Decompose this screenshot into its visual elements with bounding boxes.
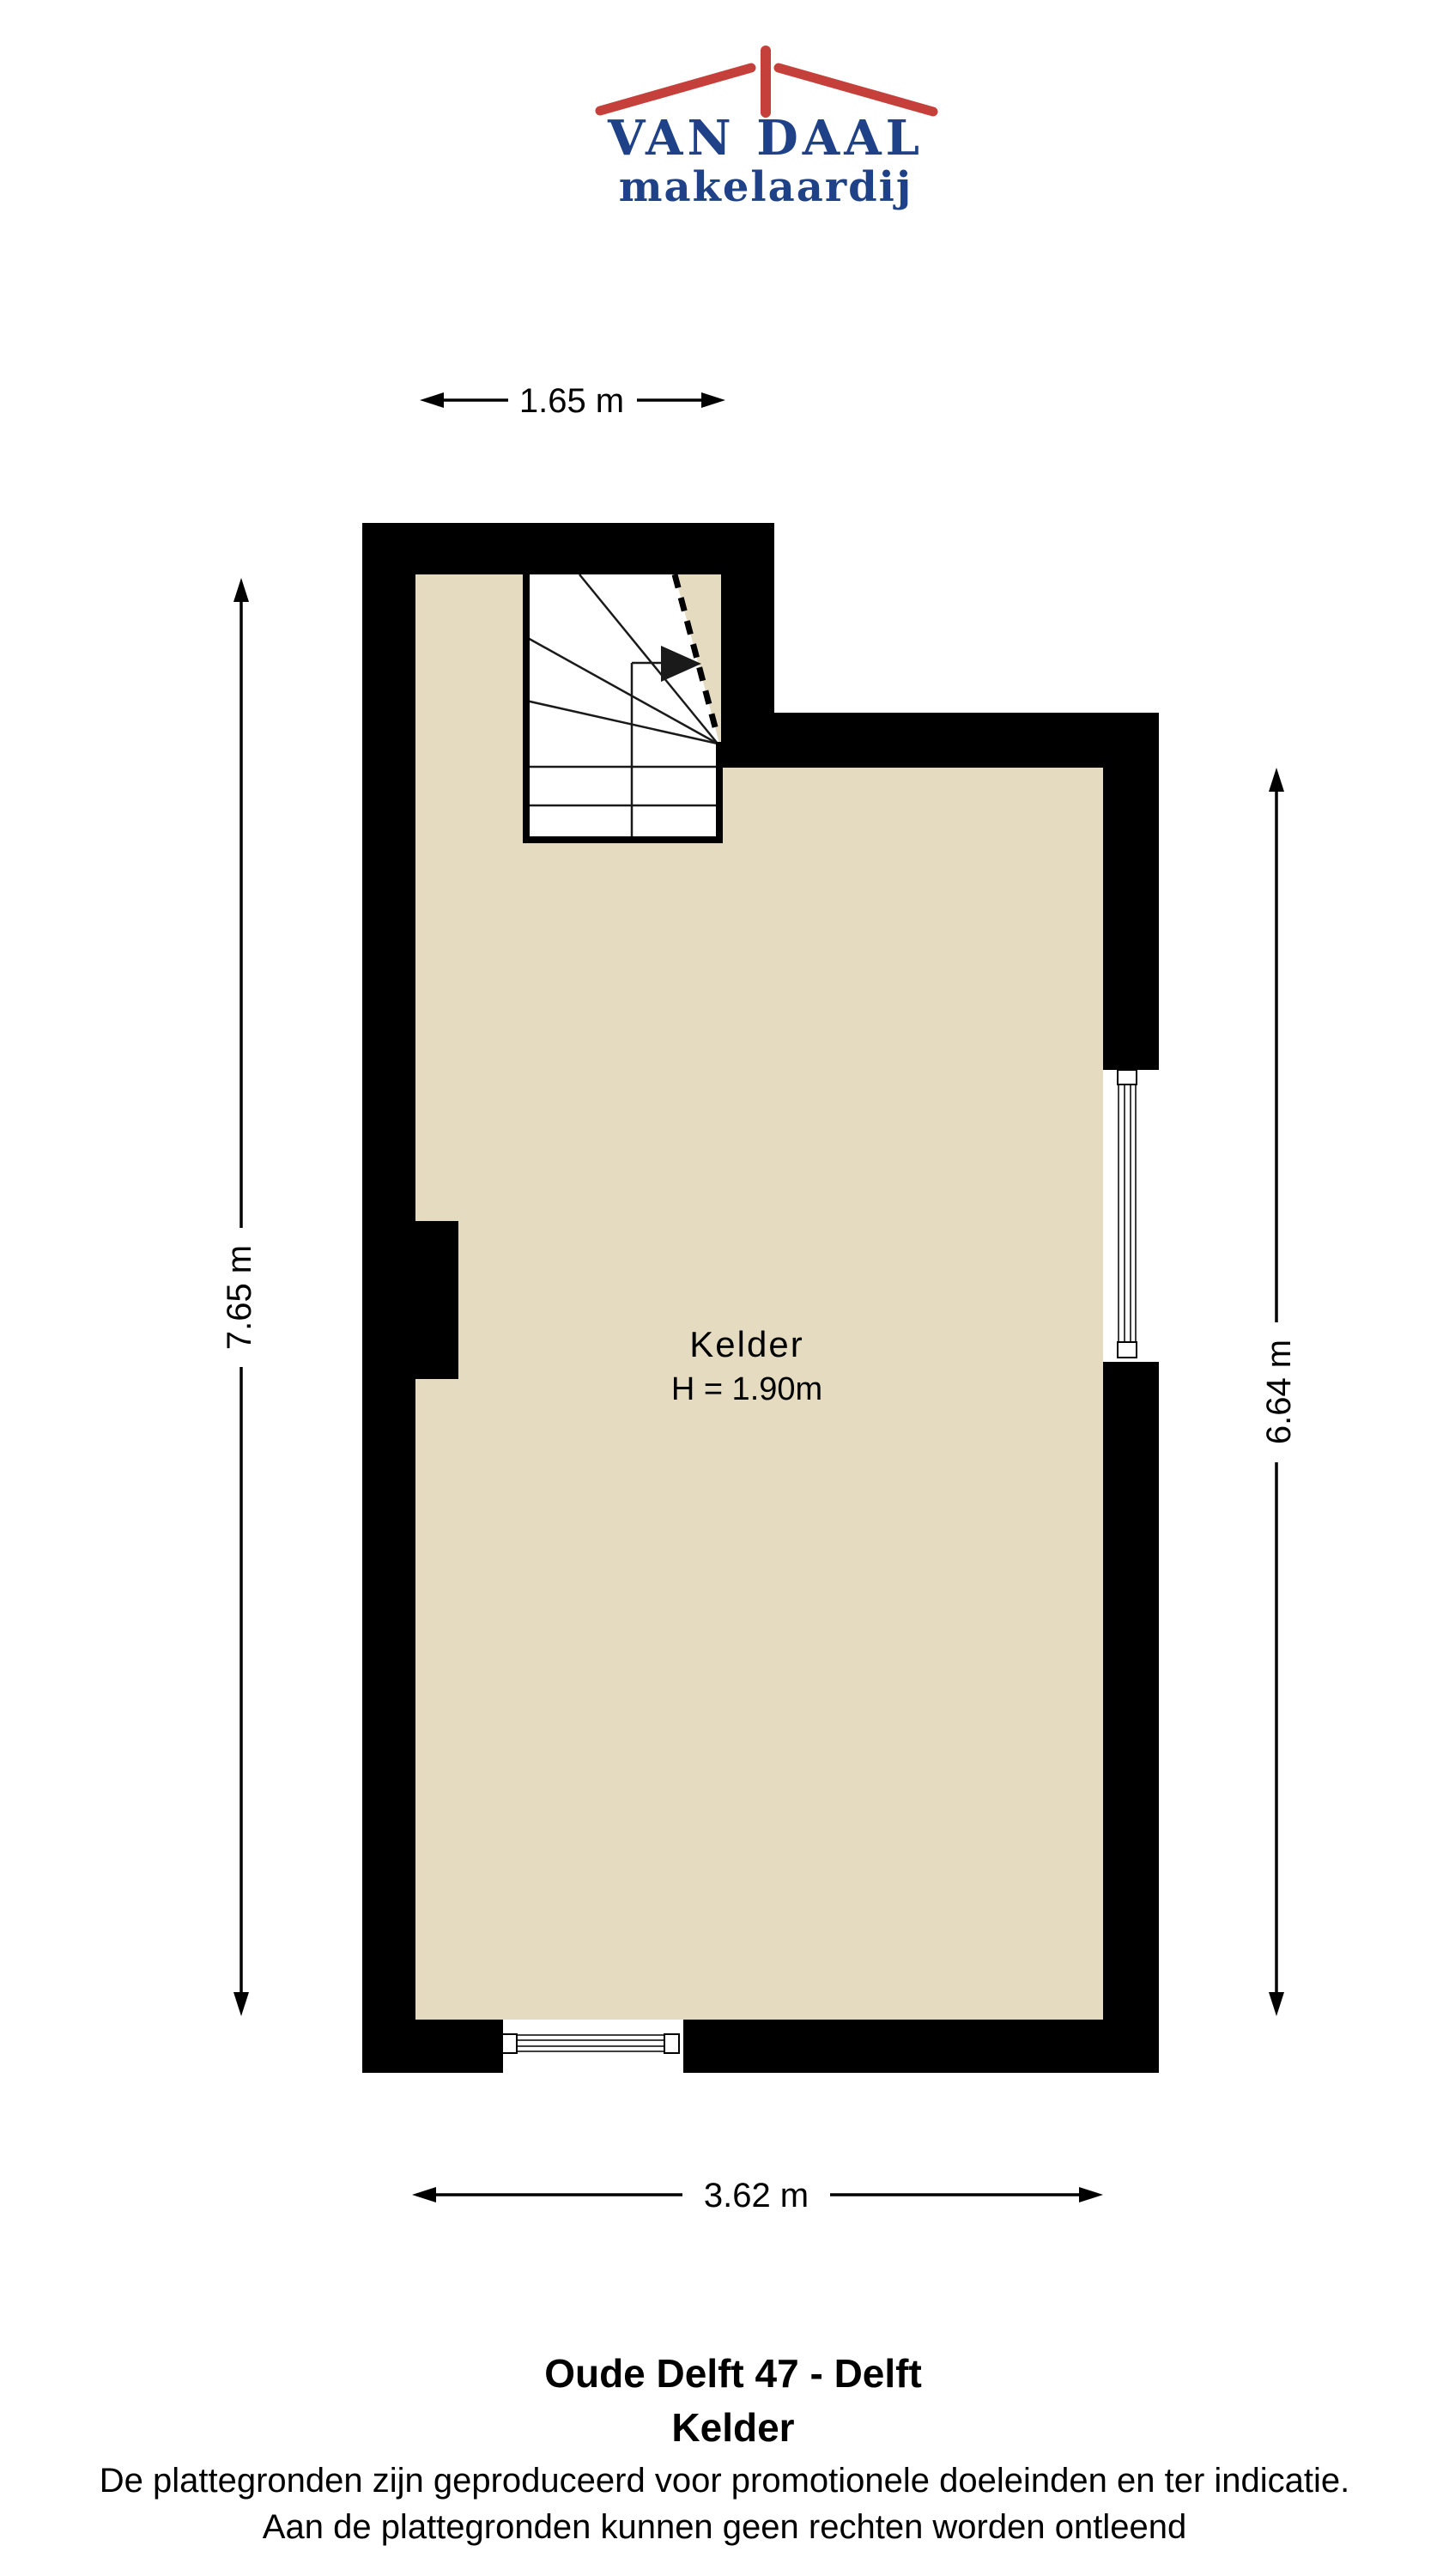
floor-subtitle: Kelder: [9, 2403, 1449, 2451]
window-bottom: [502, 2020, 683, 2073]
room-name-label: Kelder: [575, 1324, 919, 1365]
room-height-label: H = 1.90m: [575, 1370, 919, 1408]
dimension-bottom-label: 3.62 m: [670, 2176, 842, 2215]
room-floor: [415, 574, 1103, 2020]
dimension-right-label: 6.64 m: [1259, 1306, 1299, 1478]
disclaimer-line-2: Aan de plattegronden kunnen geen rechten…: [0, 2506, 1449, 2549]
disclaimer-line-1: De plattegronden zijn geproduceerd voor …: [0, 2459, 1449, 2502]
window-right: [1103, 1070, 1159, 1362]
dimension-left-label: 7.65 m: [220, 1212, 259, 1383]
address-title: Oude Delft 47 - Delft: [9, 2349, 1449, 2397]
floorplan-page: VAN DAAL makelaardij: [0, 0, 1449, 2576]
dimension-top-label: 1.65 m: [486, 381, 658, 421]
